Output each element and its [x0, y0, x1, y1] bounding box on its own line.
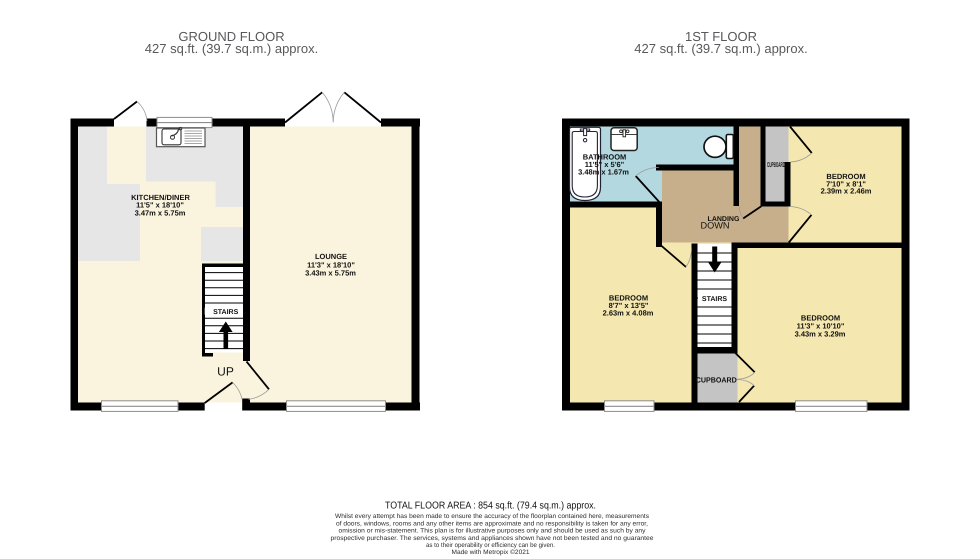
svg-text:2.39m x 2.46m: 2.39m x 2.46m	[821, 187, 872, 196]
svg-text:CUPBOARD: CUPBOARD	[767, 162, 785, 169]
svg-text:2.63m x 4.08m: 2.63m x 4.08m	[603, 309, 654, 318]
svg-text:of doors, windows, rooms and a: of doors, windows, rooms and any other i…	[336, 520, 648, 527]
svg-text:427 sq.ft. (39.7 sq.m.) approx: 427 sq.ft. (39.7 sq.m.) approx.	[145, 41, 318, 56]
svg-text:as to their operability or eff: as to their operability or efficiency ca…	[426, 542, 555, 549]
svg-text:omission or mis-statement. Thi: omission or mis-statement. This plan is …	[339, 528, 647, 535]
svg-text:TOTAL FLOOR AREA : 854 sq.ft.: TOTAL FLOOR AREA : 854 sq.ft. (79.4 sq.m…	[385, 501, 596, 512]
svg-text:prospective purchaser. The ser: prospective purchaser. The services, sys…	[331, 535, 654, 542]
svg-text:3.48m x 1.67m: 3.48m x 1.67m	[578, 168, 629, 177]
svg-text:3.43m x 3.29m: 3.43m x 3.29m	[795, 330, 846, 339]
svg-text:DOWN: DOWN	[700, 221, 729, 231]
svg-text:STAIRS: STAIRS	[213, 309, 238, 316]
svg-text:Whilst every attempt has been: Whilst every attempt has been made to en…	[335, 513, 649, 520]
svg-text:Made with Metropix ©2021: Made with Metropix ©2021	[452, 549, 530, 556]
svg-text:427 sq.ft. (39.7 sq.m.) approx: 427 sq.ft. (39.7 sq.m.) approx.	[634, 41, 807, 56]
svg-text:CUPBOARD: CUPBOARD	[696, 376, 738, 385]
svg-text:3.47m x 5.75m: 3.47m x 5.75m	[135, 209, 186, 218]
svg-text:3.43m x 5.75m: 3.43m x 5.75m	[305, 269, 356, 278]
svg-text:UP: UP	[217, 365, 234, 379]
svg-text:STAIRS: STAIRS	[702, 296, 727, 303]
